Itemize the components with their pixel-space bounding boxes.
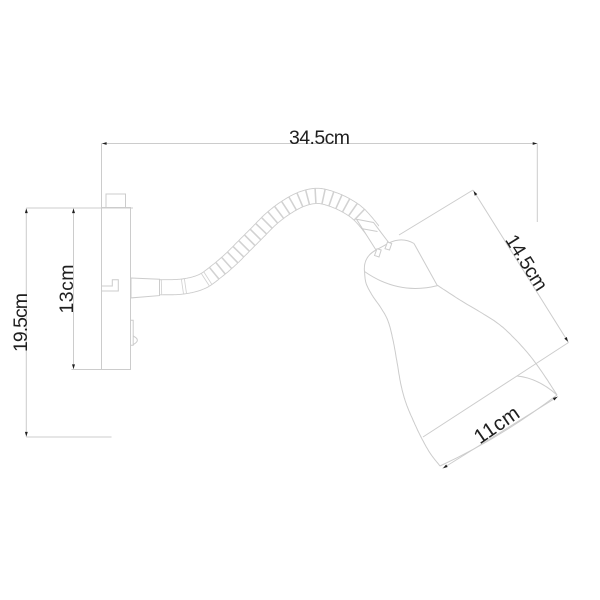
svg-text:34.5cm: 34.5cm (289, 127, 350, 149)
svg-text:19.5cm: 19.5cm (10, 293, 32, 352)
svg-text:13cm: 13cm (56, 265, 78, 314)
